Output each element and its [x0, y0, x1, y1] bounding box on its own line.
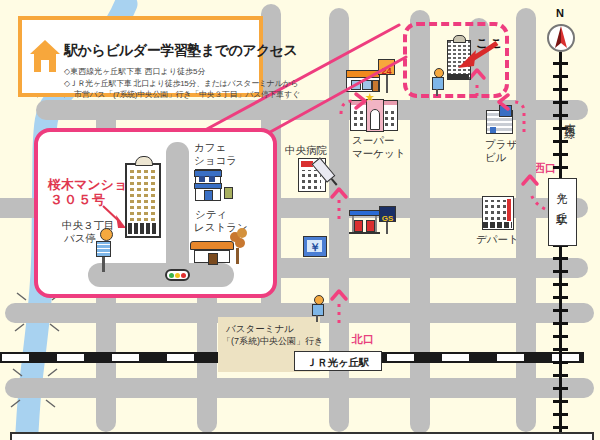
mansion-building-icon: [125, 163, 161, 238]
access-note-1: ◇東西線光ヶ丘駅下車 西口より徒歩5分: [64, 68, 205, 76]
restaurant-label-1: シティ: [195, 209, 227, 220]
inset-bus-stop-label-2: バス停: [64, 233, 96, 244]
tree-icon: [230, 228, 246, 264]
access-note-3: 市営バス「(7系統)中央公園」行き「中央３丁目」バス停下車すぐ: [74, 91, 300, 99]
access-map: 24 ★ スーパー マーケット 中央病院 GS ￥ プラザ: [0, 0, 600, 440]
inset-box: 桜木マンション ３０５号 カフェ ショコラ シティ レストラン: [34, 128, 277, 298]
access-note-2: ◇ＪＲ光ヶ丘駅下車 北口より徒歩15分、またはバスターミナルから: [64, 80, 298, 88]
house-icon: [30, 40, 60, 74]
cafe-label-1: カフェ: [194, 142, 226, 153]
cafe-icon: [195, 169, 221, 201]
cafe-stool-icon: [224, 187, 233, 199]
restaurant-icon: [190, 241, 234, 263]
inset-bus-stop-icon: [96, 228, 114, 274]
access-title: 駅からビルダー学習塾までのアクセス: [64, 43, 297, 57]
cafe-label-2: ショコラ: [194, 155, 237, 166]
title-box: 駅からビルダー学習塾までのアクセス ◇東西線光ヶ丘駅下車 西口より徒歩5分 ◇Ｊ…: [18, 16, 263, 97]
